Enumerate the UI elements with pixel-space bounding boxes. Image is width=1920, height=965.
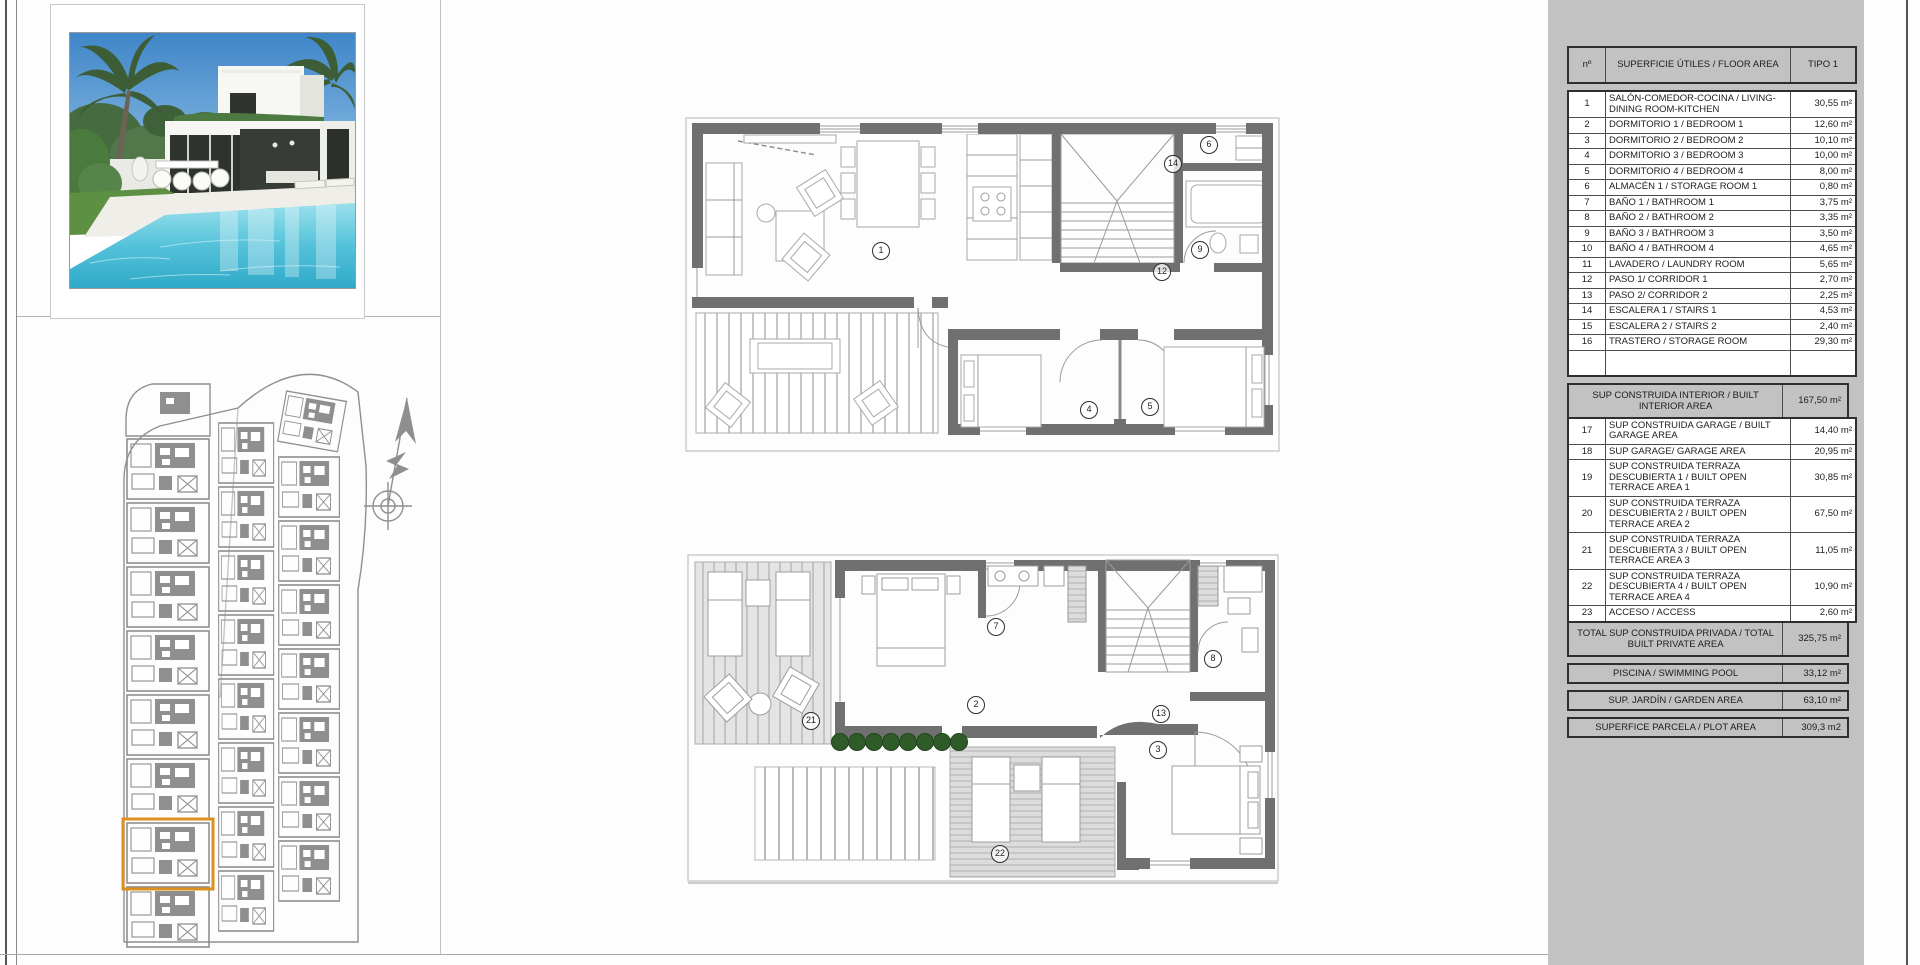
sheet-border-left-inner: [16, 0, 17, 965]
col-header-type: TIPO 1: [1791, 47, 1857, 83]
empty-row: [1568, 350, 1856, 376]
room-number-22: 22: [991, 845, 1009, 863]
area-table: nº SUPERFICIE ÚTILES / FLOOR AREA TIPO 1…: [1567, 46, 1849, 738]
built-interior-label: SUP CONSTRUIDA INTERIOR / BUILT INTERIOR…: [1569, 385, 1783, 417]
table-row: 18SUP GARAGE/ GARAGE AREA20,95 m²: [1568, 444, 1856, 460]
first-floor-plan: [680, 552, 1285, 887]
table-row: 2DORMITORIO 1 / BEDROOM 112,60 m²: [1568, 118, 1856, 134]
total-private-value: 325,75 m²: [1783, 633, 1847, 644]
room-number-14: 14: [1164, 155, 1182, 173]
table-row: 13PASO 2/ CORRIDOR 22,25 m²: [1568, 288, 1856, 304]
area-table-panel: nº SUPERFICIE ÚTILES / FLOOR AREA TIPO 1…: [1548, 0, 1864, 965]
table-row: 1SALÓN-COMEDOR-COCINA / LIVING-DINING RO…: [1568, 91, 1856, 118]
room-number-6: 6: [1200, 136, 1218, 154]
plot-area-value: 309,3 m2: [1783, 722, 1847, 733]
room-number-7: 7: [987, 618, 1005, 636]
col-header-number: nº: [1568, 47, 1606, 83]
north-arrow-icon: [364, 398, 416, 530]
table-row: 10BAÑO 4 / BATHROOM 44,65 m²: [1568, 242, 1856, 258]
room-number-9: 9: [1191, 241, 1209, 259]
table-row: 6ALMACÉN 1 / STORAGE ROOM 10,80 m²: [1568, 180, 1856, 196]
table-row: 20SUP CONSTRUIDA TERRAZA DESCUBIERTA 2 /…: [1568, 496, 1856, 533]
table-row: 19SUP CONSTRUIDA TERRAZA DESCUBIERTA 1 /…: [1568, 460, 1856, 497]
table-row: 16TRASTERO / STORAGE ROOM29,30 m²: [1568, 335, 1856, 351]
sheet-border-bottom: [0, 954, 1548, 955]
garden-area-label: SUP. JARDÍN / GARDEN AREA: [1569, 692, 1783, 709]
room-number-13: 13: [1152, 705, 1170, 723]
area-table-header: nº SUPERFICIE ÚTILES / FLOOR AREA TIPO 1: [1567, 46, 1857, 84]
table-row: 4DORMITORIO 3 / BEDROOM 310,00 m²: [1568, 149, 1856, 165]
col-header-label: SUPERFICIE ÚTILES / FLOOR AREA: [1606, 47, 1791, 83]
table-row: 8BAÑO 2 / BATHROOM 23,35 m²: [1568, 211, 1856, 227]
table-row: 21SUP CONSTRUIDA TERRAZA DESCUBIERTA 3 /…: [1568, 533, 1856, 570]
total-private-label: TOTAL SUP CONSTRUIDA PRIVADA / TOTAL BUI…: [1569, 623, 1783, 655]
total-private-row: TOTAL SUP CONSTRUIDA PRIVADA / TOTAL BUI…: [1567, 621, 1849, 657]
swimming-pool-value: 33,12 m²: [1783, 668, 1847, 679]
swimming-pool-row: PISCINA / SWIMMING POOL 33,12 m²: [1567, 663, 1849, 684]
table-row: 3DORMITORIO 2 / BEDROOM 210,10 m²: [1568, 133, 1856, 149]
garden-area-value: 63,10 m²: [1783, 695, 1847, 706]
built-area-rows: 17SUP CONSTRUIDA GARAGE / BUILT GARAGE A…: [1567, 417, 1857, 623]
room-number-3: 3: [1149, 741, 1167, 759]
room-number-5: 5: [1141, 398, 1159, 416]
sheet-border-left-outer: [5, 0, 7, 965]
table-row: 12PASO 1/ CORRIDOR 12,70 m²: [1568, 273, 1856, 289]
garden-area-row: SUP. JARDÍN / GARDEN AREA 63,10 m²: [1567, 690, 1849, 711]
room-number-8: 8: [1204, 650, 1222, 668]
site-plan: [100, 348, 445, 954]
plot-area-row: SUPERFICE PARCELA / PLOT AREA 309,3 m2: [1567, 717, 1849, 738]
table-row: 17SUP CONSTRUIDA GARAGE / BUILT GARAGE A…: [1568, 418, 1856, 445]
ground-floor-plan: [680, 115, 1285, 460]
table-row: 23ACCESO / ACCESS2,60 m²: [1568, 606, 1856, 622]
built-interior-value: 167,50 m²: [1783, 395, 1847, 406]
table-row: 7BAÑO 1 / BATHROOM 13,75 m²: [1568, 195, 1856, 211]
room-number-2: 2: [967, 696, 985, 714]
floor-area-rows: 1SALÓN-COMEDOR-COCINA / LIVING-DINING RO…: [1567, 90, 1857, 377]
table-row: 9BAÑO 3 / BATHROOM 33,50 m²: [1568, 226, 1856, 242]
table-row: 22SUP CONSTRUIDA TERRAZA DESCUBIERTA 4 /…: [1568, 569, 1856, 606]
table-row: 14ESCALERA 1 / STAIRS 14,53 m²: [1568, 304, 1856, 320]
swimming-pool-label: PISCINA / SWIMMING POOL: [1569, 665, 1783, 682]
plot-area-label: SUPERFICE PARCELA / PLOT AREA: [1569, 719, 1783, 736]
table-row: 15ESCALERA 2 / STAIRS 22,40 m²: [1568, 319, 1856, 335]
floorplan-sheet: 1 4 5 6 9 12 14 2 3 7 8 13 21 22 nº SUPE…: [0, 0, 1920, 965]
room-number-1: 1: [872, 242, 890, 260]
villa-render-photo: [69, 32, 356, 289]
table-row: 11LAVADERO / LAUNDRY ROOM5,65 m²: [1568, 257, 1856, 273]
table-row: 5DORMITORIO 4 / BEDROOM 48,00 m²: [1568, 164, 1856, 180]
built-interior-row: SUP CONSTRUIDA INTERIOR / BUILT INTERIOR…: [1567, 383, 1849, 419]
room-number-21: 21: [802, 712, 820, 730]
room-number-4: 4: [1080, 401, 1098, 419]
sheet-border-right: [1906, 0, 1908, 965]
room-number-12: 12: [1153, 263, 1171, 281]
